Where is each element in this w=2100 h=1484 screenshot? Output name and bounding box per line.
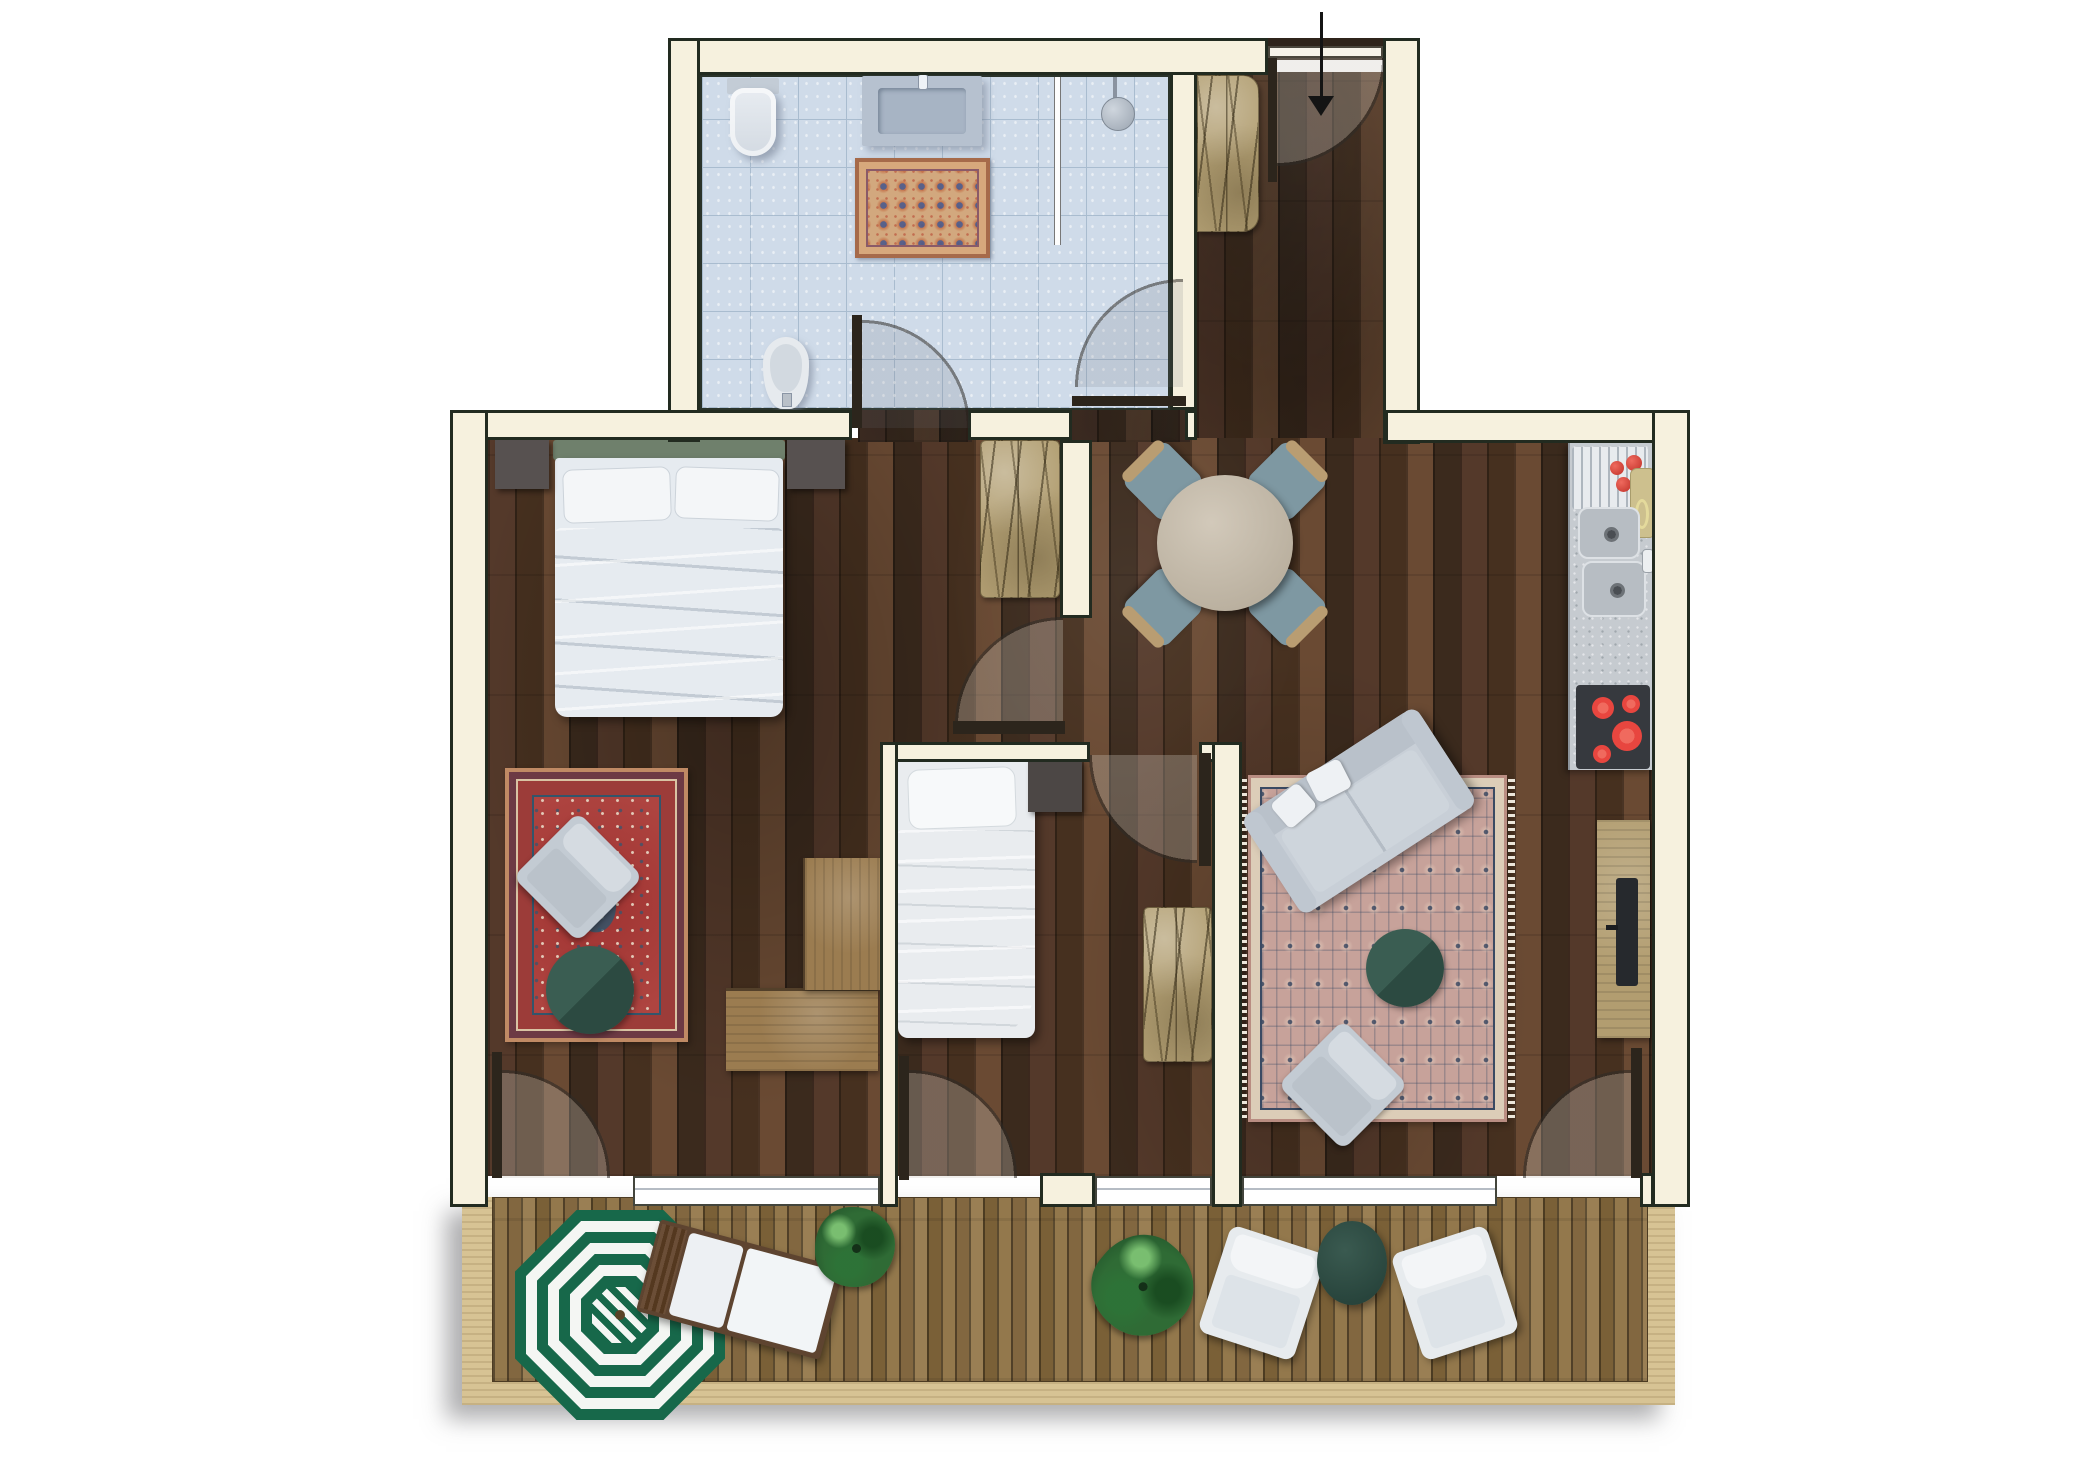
living-terrace-door-leaf xyxy=(1631,1048,1642,1178)
terrace-table xyxy=(1317,1221,1387,1305)
coffee-table xyxy=(1366,929,1444,1007)
cooktop xyxy=(1576,685,1650,769)
wall-entrance-east xyxy=(1383,38,1420,444)
bathroom-rug xyxy=(855,158,990,258)
window-living xyxy=(1242,1176,1497,1206)
bedroom-bench-vertical xyxy=(803,858,880,990)
vanity-basin xyxy=(878,88,966,134)
window-small-bedroom xyxy=(1095,1176,1212,1206)
floor-plan xyxy=(0,0,2100,1484)
parasol-pole xyxy=(615,1310,625,1320)
entry-door-sill xyxy=(1268,46,1383,58)
dining-table xyxy=(1157,475,1293,611)
sink-drain xyxy=(1604,527,1619,542)
wall-bathroom-north xyxy=(668,38,1268,75)
toilet xyxy=(727,78,779,158)
potted-plant xyxy=(815,1207,895,1287)
sink-drain xyxy=(1610,583,1625,598)
wall-living-north xyxy=(1385,410,1690,443)
wall-corridor-t xyxy=(1060,440,1092,618)
bidet-basin xyxy=(770,344,802,392)
wall-bedroom-north xyxy=(450,410,852,440)
corridor-storage-bench xyxy=(980,440,1060,598)
faucet-icon xyxy=(918,74,928,90)
kitchen-sink xyxy=(1582,561,1646,617)
bed-headboard xyxy=(553,440,785,460)
bedroom-terrace-door-leaf xyxy=(492,1052,502,1178)
corridor-door-leaf xyxy=(953,721,1065,734)
double-bed xyxy=(553,440,785,717)
wall-south-pier xyxy=(1040,1173,1095,1207)
tv-stand xyxy=(1606,925,1618,930)
wall-living-divider xyxy=(1212,742,1242,1207)
wall-bathroom-west xyxy=(668,38,700,442)
wall-bath-south-east xyxy=(1185,410,1197,440)
bidet xyxy=(763,337,809,409)
small-bedroom-wardrobe-bench xyxy=(1143,907,1212,1062)
wall-small-bedroom-north xyxy=(880,742,1090,762)
vanity-sink xyxy=(862,76,982,146)
bed-pillow xyxy=(674,466,780,522)
bed-duvet xyxy=(555,528,783,717)
burner xyxy=(1593,745,1611,763)
wall-bedroom-divider xyxy=(880,742,898,1207)
burner xyxy=(1622,695,1640,713)
bathroom-hall-door-leaf xyxy=(1072,396,1186,406)
kitchen-sink xyxy=(1578,507,1640,559)
rug-fringe xyxy=(1508,779,1515,1118)
bidet-tap xyxy=(782,393,792,407)
tv xyxy=(1616,878,1638,986)
entry-arrow-shaft xyxy=(1320,12,1323,98)
wall-south-pier xyxy=(1640,1173,1654,1207)
shower-head xyxy=(1101,97,1135,131)
burner xyxy=(1612,721,1642,751)
shower-glass-screen xyxy=(1054,77,1061,245)
burner xyxy=(1592,697,1614,719)
single-bed xyxy=(898,758,1035,1038)
entrance-wardrobe xyxy=(1197,75,1259,232)
small-bedroom-door-leaf xyxy=(1199,753,1211,866)
window-bedroom xyxy=(633,1176,880,1206)
nightstand xyxy=(495,440,549,489)
bed-pillow xyxy=(907,766,1017,830)
nightstand xyxy=(1028,760,1082,812)
wall-bath-south-mid xyxy=(968,410,1072,440)
bedroom-bench-horizontal xyxy=(726,988,878,1071)
bedroom-side-table xyxy=(546,946,634,1034)
small-bedroom-terrace-door-leaf xyxy=(899,1056,909,1180)
nightstand xyxy=(787,440,845,489)
bed-duvet xyxy=(898,830,1035,1036)
toilet-bowl xyxy=(730,88,776,156)
bathroom-door-leaf xyxy=(852,315,862,428)
doorway-floor-patch xyxy=(1070,406,1190,442)
bed-pillow xyxy=(562,466,672,524)
entry-door-leaf xyxy=(1268,58,1277,182)
wall-west xyxy=(450,410,488,1207)
entry-arrow-head xyxy=(1308,96,1334,116)
wall-east xyxy=(1652,410,1690,1207)
